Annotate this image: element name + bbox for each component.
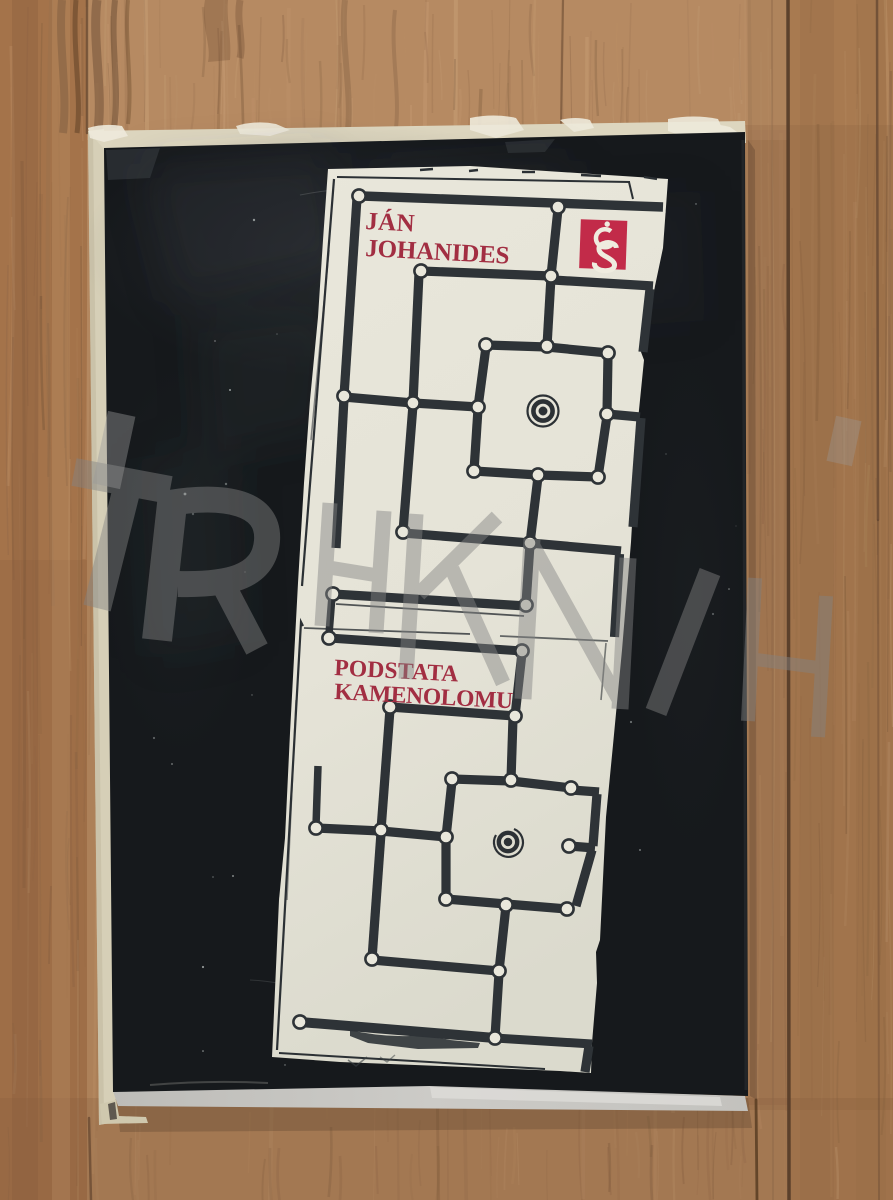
svg-text:JÁN: JÁN [365,207,416,238]
